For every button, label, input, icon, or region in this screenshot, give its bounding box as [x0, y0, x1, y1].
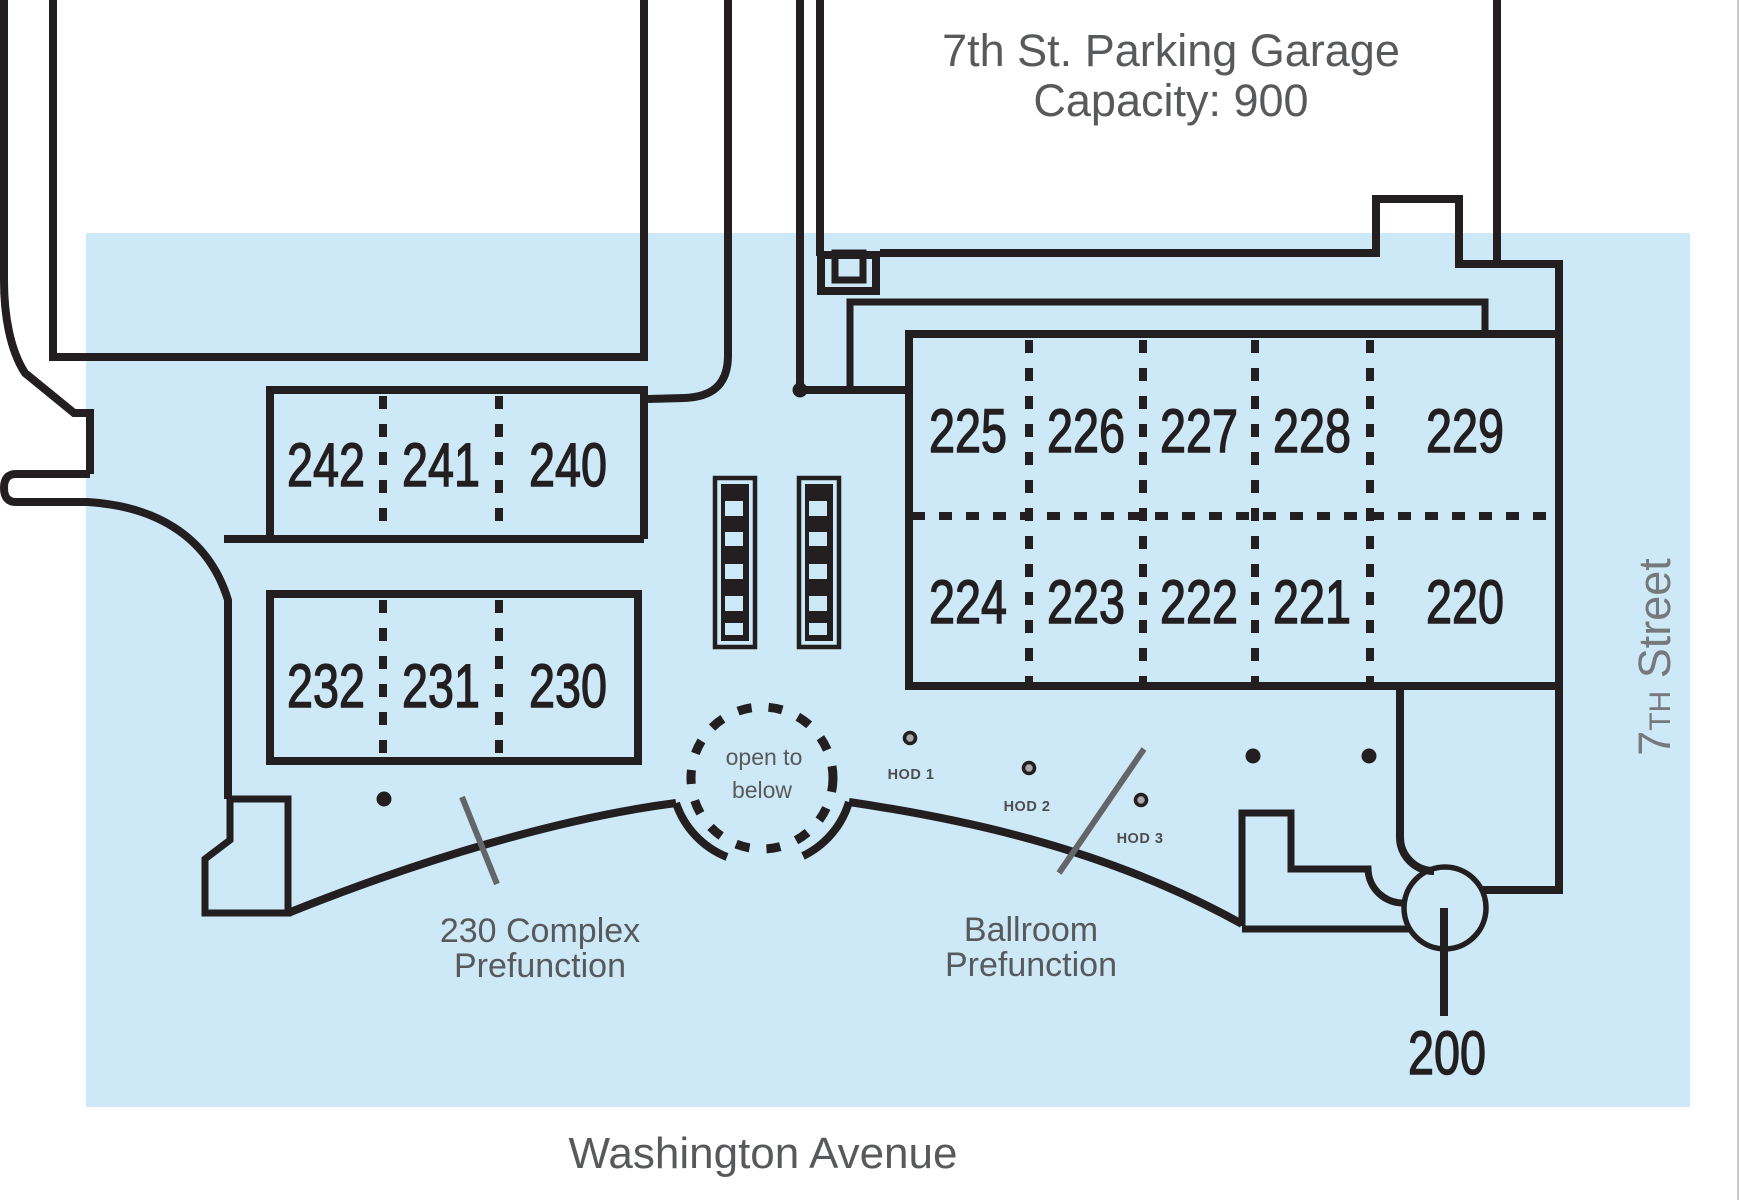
svg-text:HOD 1: HOD 1	[888, 767, 935, 783]
svg-text:229: 229	[1426, 397, 1504, 465]
svg-text:224: 224	[929, 568, 1007, 636]
svg-text:223: 223	[1047, 568, 1125, 636]
svg-text:200: 200	[1408, 1019, 1486, 1087]
svg-text:228: 228	[1273, 397, 1351, 465]
svg-text:below: below	[732, 777, 792, 803]
svg-text:7th St. Parking Garage: 7th St. Parking Garage	[942, 25, 1400, 76]
svg-text:HOD 3: HOD 3	[1117, 831, 1164, 847]
svg-text:230 Complex: 230 Complex	[440, 912, 640, 950]
svg-text:Washington Avenue: Washington Avenue	[569, 1129, 958, 1178]
svg-text:226: 226	[1047, 397, 1125, 465]
svg-text:Prefunction: Prefunction	[454, 947, 626, 985]
svg-text:230: 230	[529, 652, 607, 720]
svg-text:231: 231	[402, 652, 480, 720]
svg-text:240: 240	[529, 431, 607, 499]
svg-text:227: 227	[1160, 397, 1238, 465]
svg-text:222: 222	[1160, 568, 1238, 636]
svg-text:HOD 2: HOD 2	[1004, 799, 1051, 815]
svg-text:Ballroom: Ballroom	[964, 911, 1098, 949]
svg-text:Capacity: 900: Capacity: 900	[1033, 75, 1308, 126]
svg-text:241: 241	[402, 431, 480, 499]
svg-text:232: 232	[287, 652, 365, 720]
svg-text:open to: open to	[726, 744, 803, 770]
svg-text:225: 225	[929, 397, 1007, 465]
svg-text:221: 221	[1273, 568, 1351, 636]
svg-text:242: 242	[287, 431, 365, 499]
svg-text:220: 220	[1426, 568, 1504, 636]
svg-text:Prefunction: Prefunction	[945, 946, 1117, 984]
